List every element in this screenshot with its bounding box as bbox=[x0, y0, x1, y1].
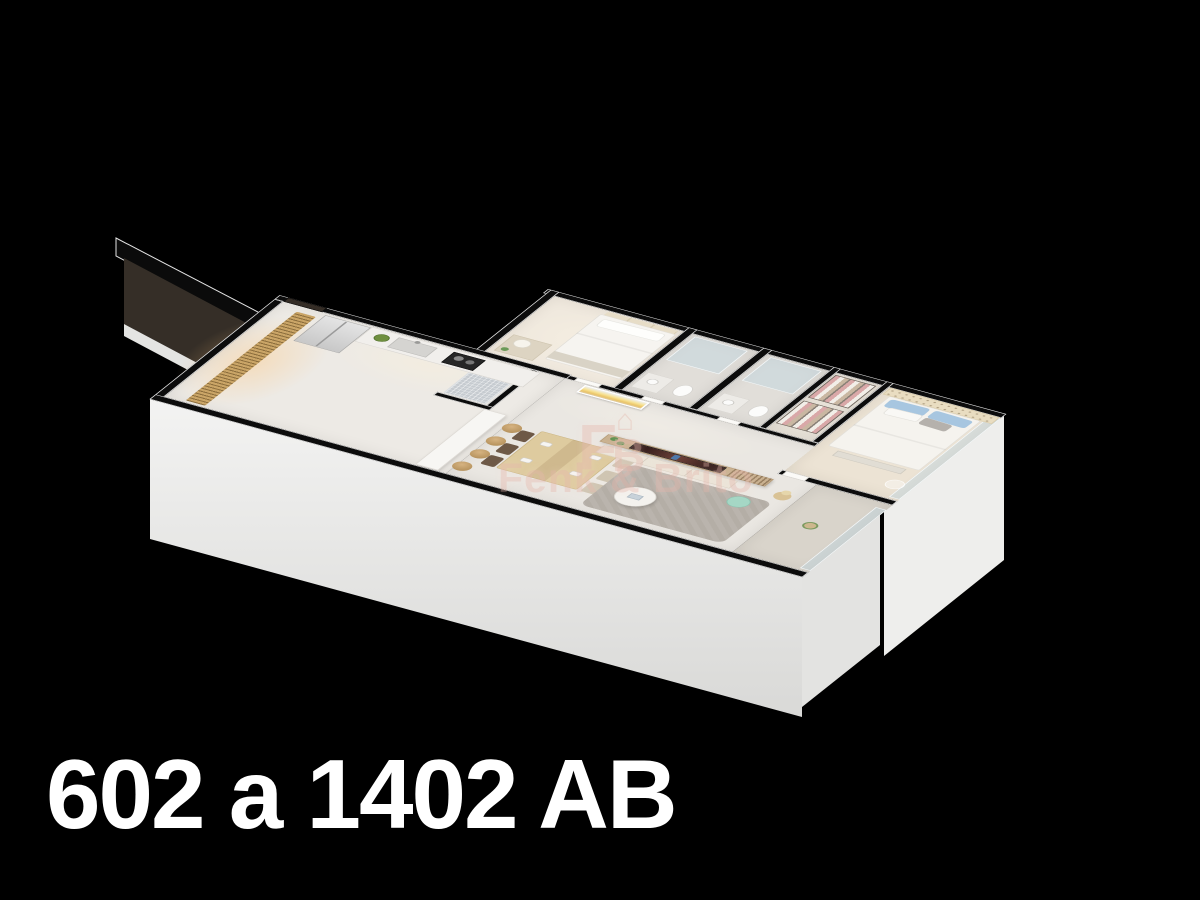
scene: F ⌂ B Fenk & Brito 602 a 1402 AB bbox=[0, 0, 1200, 900]
unit-caption: 602 a 1402 AB bbox=[46, 738, 676, 851]
